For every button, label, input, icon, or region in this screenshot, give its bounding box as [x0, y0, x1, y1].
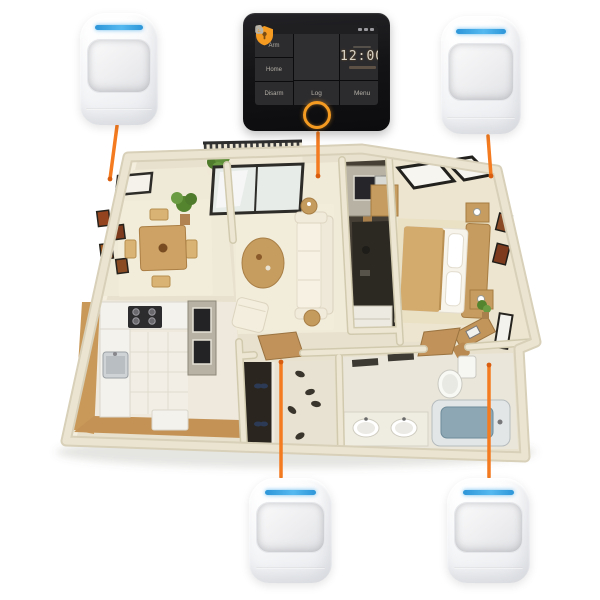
sensor-body — [447, 478, 530, 583]
balcony-railing-top — [203, 141, 302, 143]
closet-item — [360, 270, 370, 276]
sensor-seam — [86, 108, 152, 110]
sensor-pir-lens — [454, 502, 522, 553]
clock-weekday-text — [353, 46, 371, 48]
vanity-double-sink — [344, 412, 428, 446]
motion-sensor-bottom-center — [249, 478, 332, 583]
oven-tower — [188, 301, 216, 375]
sensor-led-stripe — [456, 29, 506, 34]
menu-button[interactable]: Menu — [340, 81, 378, 105]
sensor-body — [80, 13, 158, 125]
sensor-pir-lens — [256, 502, 324, 553]
disarm-label: Disarm — [265, 91, 284, 97]
signal-icon — [358, 28, 362, 31]
clock-tile: 12:00 — [340, 34, 378, 80]
sensor-led-stripe — [265, 490, 316, 495]
panel-screen: 12:00 Arm Home — [255, 25, 378, 105]
shoe-closet — [244, 362, 273, 446]
kitchen-sink — [103, 352, 128, 378]
coffee-table — [242, 238, 284, 288]
menu-label: Menu — [354, 90, 370, 97]
clock-date-text — [349, 66, 376, 69]
sensor-seam — [256, 567, 326, 569]
panel-tile-grid: 12:00 Arm Home — [255, 34, 378, 105]
panel-ring-button[interactable] — [303, 101, 331, 129]
alarm-control-panel: 12:00 Arm Home — [243, 13, 390, 131]
sensor-body — [441, 16, 521, 134]
sensor-seam — [447, 117, 514, 119]
stove — [128, 306, 162, 328]
motion-sensor-top-left — [80, 13, 158, 125]
side-table — [304, 310, 320, 326]
smart-alarm-system-diagram: 12:00 Arm Home — [0, 0, 600, 600]
sensor-pir-lens — [448, 43, 514, 100]
sensor-seam — [454, 567, 524, 569]
shield-status-tile[interactable] — [294, 34, 339, 80]
disarm-button[interactable]: Disarm — [255, 82, 293, 105]
menu-grid-icon — [255, 25, 262, 32]
glass — [307, 202, 311, 206]
motion-sensor-top-right — [441, 16, 521, 134]
sensor-led-stripe — [95, 25, 143, 30]
motion-sensor-bottom-right — [447, 478, 530, 583]
battery-icon — [370, 28, 374, 31]
closet-item — [362, 246, 370, 254]
sofa — [295, 212, 333, 319]
connector-top-left — [110, 126, 117, 179]
home-button[interactable]: Home — [255, 58, 293, 81]
sensor-pir-lens — [87, 39, 151, 94]
bathtub — [432, 400, 510, 446]
entry-door — [258, 332, 304, 360]
kitchen-island — [152, 410, 188, 430]
sensor-body — [249, 478, 332, 583]
sensor-led-stripe — [463, 490, 514, 495]
kitchen-tile — [128, 332, 188, 414]
log-label: Log — [311, 90, 322, 97]
home-label: Home — [266, 67, 282, 73]
clock-time: 12:00 — [340, 50, 378, 63]
status-icons — [358, 28, 374, 31]
wifi-icon — [364, 28, 368, 31]
